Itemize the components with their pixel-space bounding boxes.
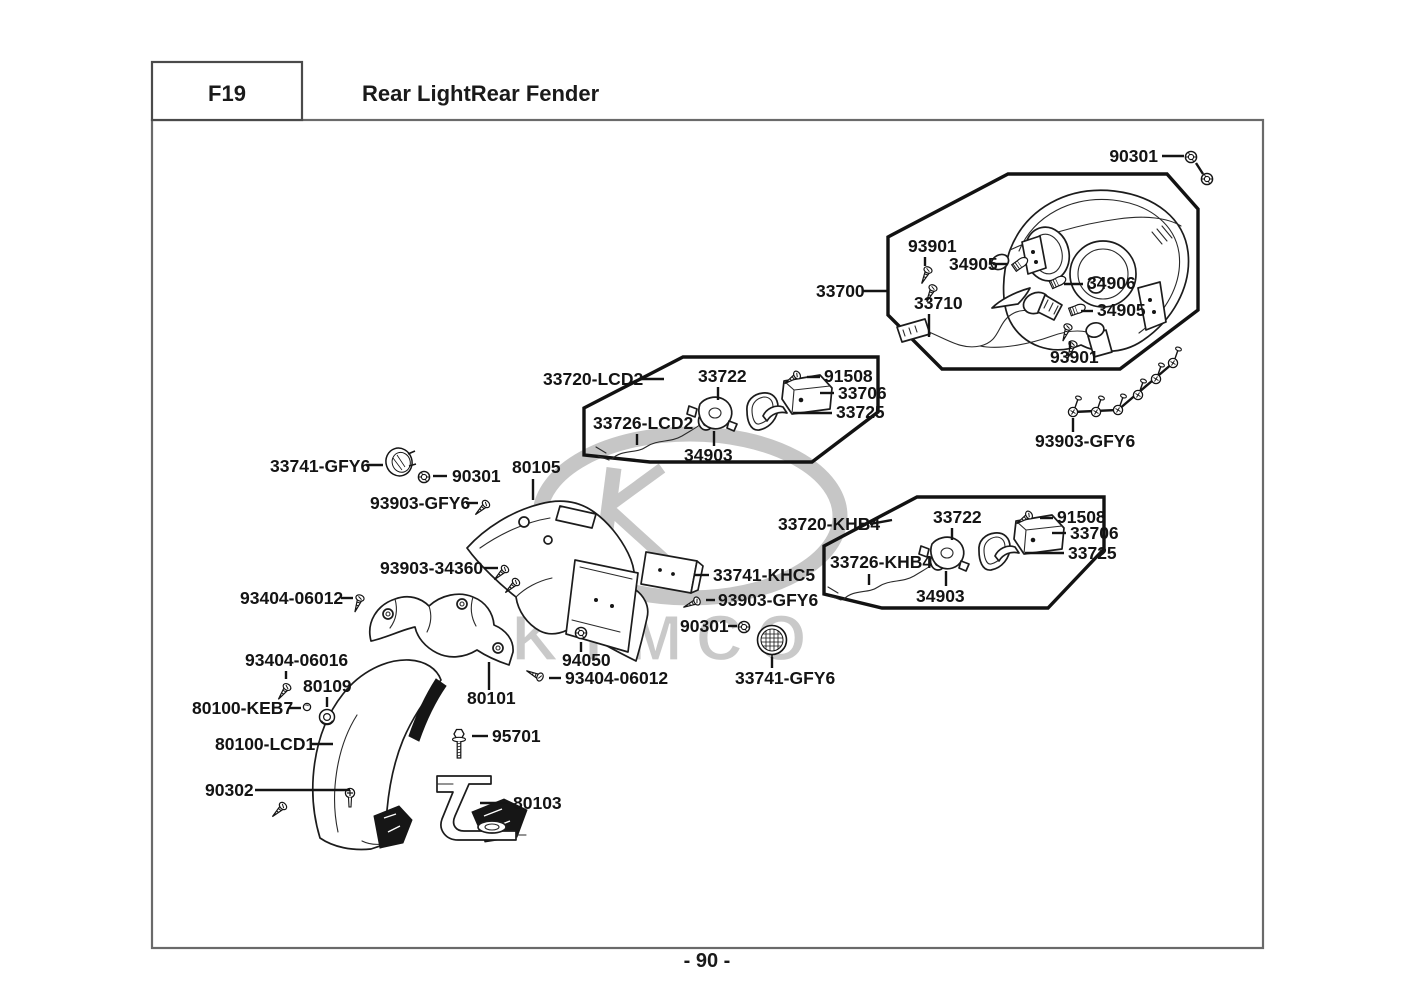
screw-icon [351, 594, 365, 614]
screw-icon [269, 801, 288, 820]
part-label-33725: 33725 [1068, 543, 1117, 563]
part-label-33720-LCD2: 33720-LCD2 [543, 369, 643, 389]
part-label-93404-06012: 93404-06012 [240, 588, 343, 608]
part-label-33726-LCD2: 33726-LCD2 [593, 413, 693, 433]
part-label-93903-GFY6: 93903-GFY6 [718, 590, 818, 610]
nut-icon [575, 627, 586, 638]
part-label-33722: 33722 [933, 507, 982, 527]
part-label-33706: 33706 [838, 383, 887, 403]
nut-icon [738, 621, 749, 632]
part-label-33710: 33710 [914, 293, 963, 313]
part-label-33706: 33706 [1070, 523, 1119, 543]
part-label-80105: 80105 [512, 457, 561, 477]
part-label-80101: 80101 [467, 688, 516, 708]
page-code: F19 [208, 81, 246, 106]
part-label-80109: 80109 [303, 676, 352, 696]
part-label-34903: 34903 [916, 586, 965, 606]
catalog-page: KYMCO F19 Rear LightRear Fender - 90 - [0, 0, 1415, 1000]
part-label-93404-06012: 93404-06012 [565, 668, 668, 688]
part-label-80100-LCD1: 80100-LCD1 [215, 734, 315, 754]
grommet-icon [320, 710, 335, 725]
part-label-93901: 93901 [908, 236, 957, 256]
part-label-93404-06016: 93404-06016 [245, 650, 348, 670]
part-label-34905: 34905 [949, 254, 998, 274]
part-label-93901: 93901 [1050, 347, 1099, 367]
damper-ball-icon [303, 703, 310, 710]
pin-screw-icon [1068, 395, 1082, 416]
part-label-33725: 33725 [836, 402, 885, 422]
part-label-90301: 90301 [1109, 146, 1158, 166]
part-label-93903-GFY6: 93903-GFY6 [370, 493, 470, 513]
part-label-33726-KHB4: 33726-KHB4 [830, 552, 932, 572]
screw-icon [472, 499, 491, 518]
part-label-93903-GFY6: 93903-GFY6 [1035, 431, 1135, 451]
pin-screw-icon [1091, 395, 1105, 416]
screw-icon [918, 266, 933, 286]
pin-screw-icon [1168, 346, 1182, 367]
reflector-disc-icon [382, 445, 416, 480]
fender-stay-drawing [370, 594, 513, 665]
nut-icon [1185, 151, 1196, 162]
nut-icon [418, 471, 429, 482]
nut-icon [1201, 173, 1212, 184]
part-label-34903: 34903 [684, 445, 733, 465]
leader-line [1196, 163, 1203, 174]
part-label-33722: 33722 [698, 366, 747, 386]
parts-diagram-svg: KYMCO F19 Rear LightRear Fender - 90 - [0, 0, 1415, 1000]
part-label-90301: 90301 [452, 466, 501, 486]
part-label-33720-KHB4: 33720-KHB4 [778, 514, 880, 534]
plate-bracket-drawing [641, 552, 703, 593]
part-label-80100-KEB7: 80100-KEB7 [192, 698, 293, 718]
part-label-95701: 95701 [492, 726, 541, 746]
part-label-93903-34360: 93903-34360 [380, 558, 483, 578]
part-label-33741-GFY6: 33741-GFY6 [735, 668, 835, 688]
part-label-80103: 80103 [513, 793, 562, 813]
part-label-33741-GFY6: 33741-GFY6 [270, 456, 370, 476]
part-label-34905: 34905 [1097, 300, 1146, 320]
part-label-90302: 90302 [205, 780, 254, 800]
pin-screw-icon [1133, 378, 1147, 399]
part-label-90301: 90301 [680, 616, 729, 636]
part-label-94050: 94050 [562, 650, 611, 670]
part-label-34906: 34906 [1087, 273, 1136, 293]
part-label-33741-KHC5: 33741-KHC5 [713, 565, 815, 585]
page-title: Rear LightRear Fender [362, 81, 600, 106]
flange-bolt-icon [453, 730, 466, 759]
part-label-33700: 33700 [816, 281, 865, 301]
page-number: - 90 - [684, 950, 731, 972]
